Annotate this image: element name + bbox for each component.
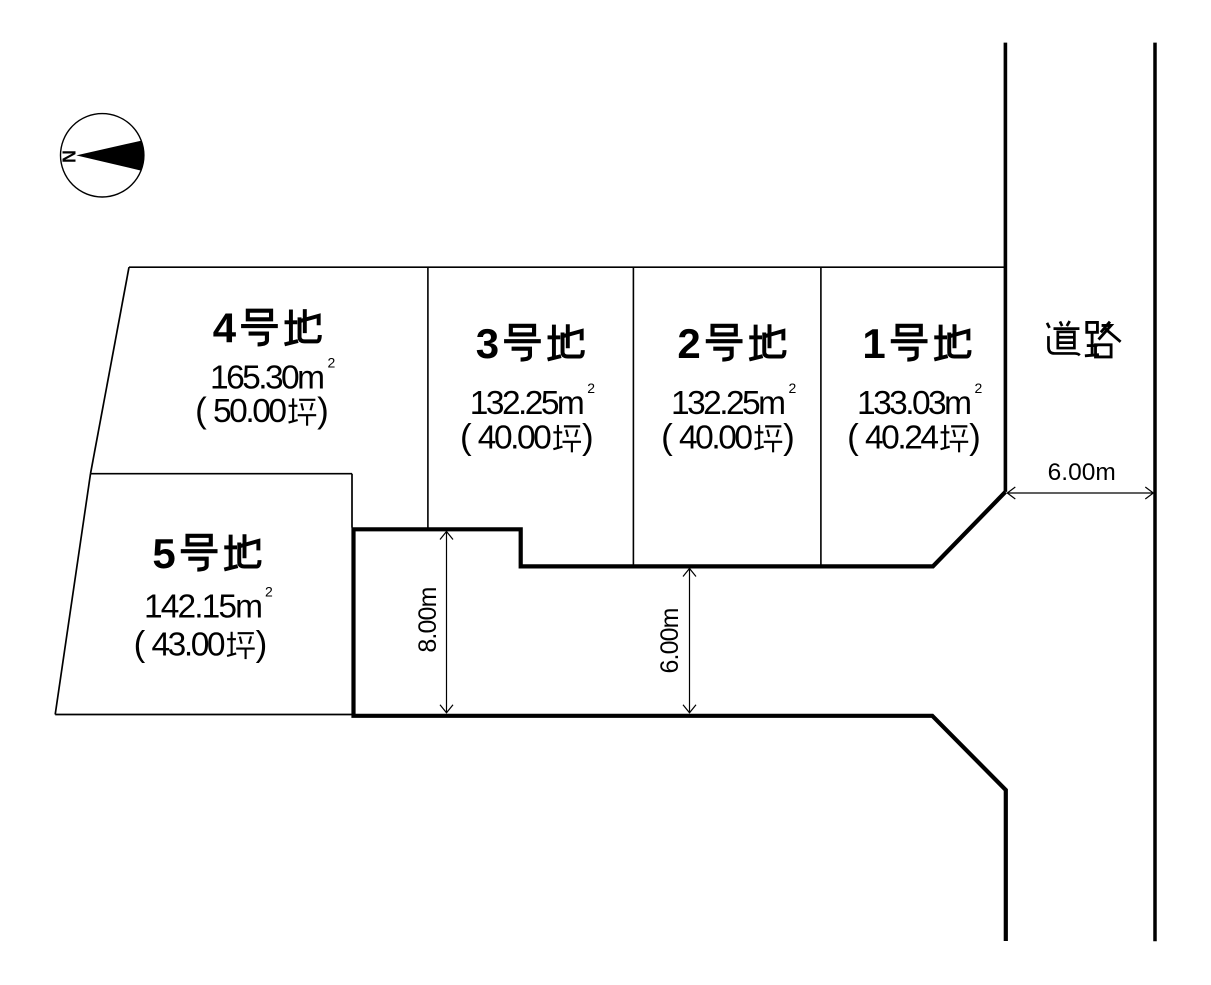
svg-text:2: 2 <box>789 380 797 396</box>
svg-text:2: 2 <box>975 380 983 396</box>
svg-text:165.30m: 165.30m <box>210 359 325 396</box>
svg-text:): ) <box>969 418 981 457</box>
svg-text:): ) <box>783 418 795 457</box>
svg-text:4: 4 <box>213 305 237 352</box>
svg-text:2: 2 <box>265 584 273 600</box>
svg-text:43.00: 43.00 <box>152 626 226 663</box>
svg-text:(: ( <box>195 391 207 430</box>
svg-text:8.00m: 8.00m <box>414 587 442 653</box>
svg-text:40.00: 40.00 <box>679 420 753 457</box>
svg-text:6.00m: 6.00m <box>656 608 684 674</box>
svg-text:133.03m: 133.03m <box>857 385 972 422</box>
svg-text:): ) <box>582 418 594 457</box>
svg-text:(: ( <box>460 418 472 457</box>
svg-text:(: ( <box>847 418 859 457</box>
svg-text:3: 3 <box>476 320 499 367</box>
svg-text:1: 1 <box>862 320 885 367</box>
svg-text:2: 2 <box>677 320 700 367</box>
svg-text:): ) <box>317 391 329 430</box>
svg-text:132.25m: 132.25m <box>671 385 786 422</box>
svg-text:40.24: 40.24 <box>865 420 939 457</box>
svg-text:5: 5 <box>152 530 175 577</box>
svg-text:(: ( <box>134 624 146 663</box>
svg-text:40.00: 40.00 <box>478 420 552 457</box>
svg-text:): ) <box>256 624 268 663</box>
svg-text:(: ( <box>661 418 673 457</box>
svg-text:N: N <box>59 150 79 163</box>
svg-text:132.25m: 132.25m <box>470 385 585 422</box>
svg-text:50.00: 50.00 <box>213 393 287 430</box>
svg-text:6.00m: 6.00m <box>1048 459 1116 486</box>
svg-text:2: 2 <box>587 380 595 396</box>
svg-text:2: 2 <box>328 354 336 370</box>
svg-text:142.15m: 142.15m <box>144 589 263 626</box>
